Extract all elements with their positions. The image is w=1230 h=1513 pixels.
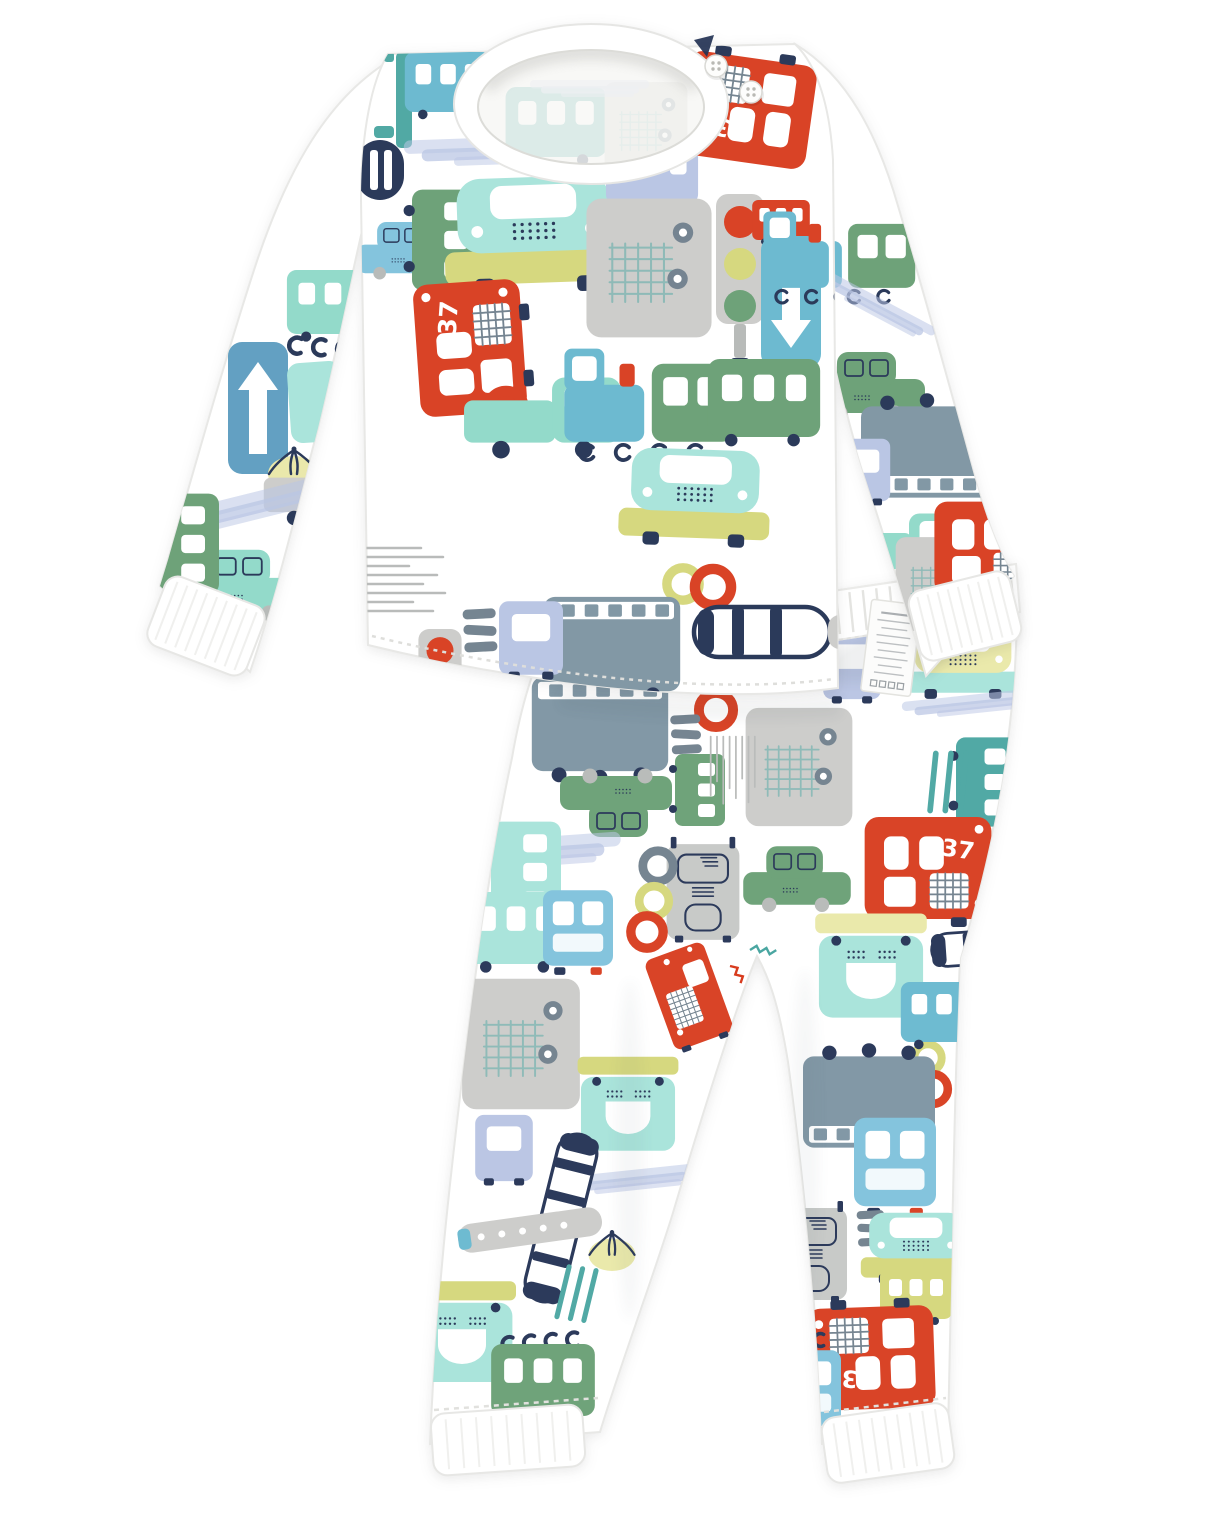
- motif-truckGrid: [462, 979, 580, 1110]
- left-pant-cuff: [430, 1404, 586, 1476]
- motif-arrowSign: [228, 342, 288, 474]
- motif-aquaRect: [286, 360, 345, 444]
- motif-wheelHooks: [757, 1334, 824, 1347]
- svg-text:37: 37: [1003, 517, 1036, 546]
- motif-crosswalk: [462, 608, 497, 652]
- motif-truckGrid: [746, 708, 853, 826]
- svg-text:37: 37: [433, 300, 464, 337]
- motif-truckRear: [532, 677, 668, 785]
- pant-cuffs: [430, 1401, 956, 1484]
- motif-truckGrid: [586, 199, 711, 338]
- svg-text:37: 37: [940, 833, 977, 865]
- motif-busFrontBlue: [854, 1118, 936, 1217]
- motif-periTruck: [475, 1115, 533, 1186]
- collar: [454, 24, 728, 184]
- shirt-top: 3737 3737: [141, 24, 1050, 739]
- motif-busSide: [949, 737, 1018, 826]
- motif-carFront: [618, 447, 772, 549]
- pajama-set-product-photo: 3737 3737 3737: [0, 0, 1230, 1513]
- motif-bus37: 37: [865, 817, 992, 927]
- motif-busSide: [708, 359, 820, 446]
- motif-truckFace: [667, 837, 740, 943]
- product-photo-svg: 3737 3737 3737: [0, 0, 1230, 1513]
- motif-crosswalk: [670, 714, 702, 754]
- pants: 3737: [408, 564, 1075, 1485]
- motif-trafficLight: [418, 629, 461, 739]
- motif-busSide: [901, 982, 987, 1049]
- motif-busFrontBlue: [543, 890, 613, 975]
- motif-roadDashes: [336, 394, 367, 457]
